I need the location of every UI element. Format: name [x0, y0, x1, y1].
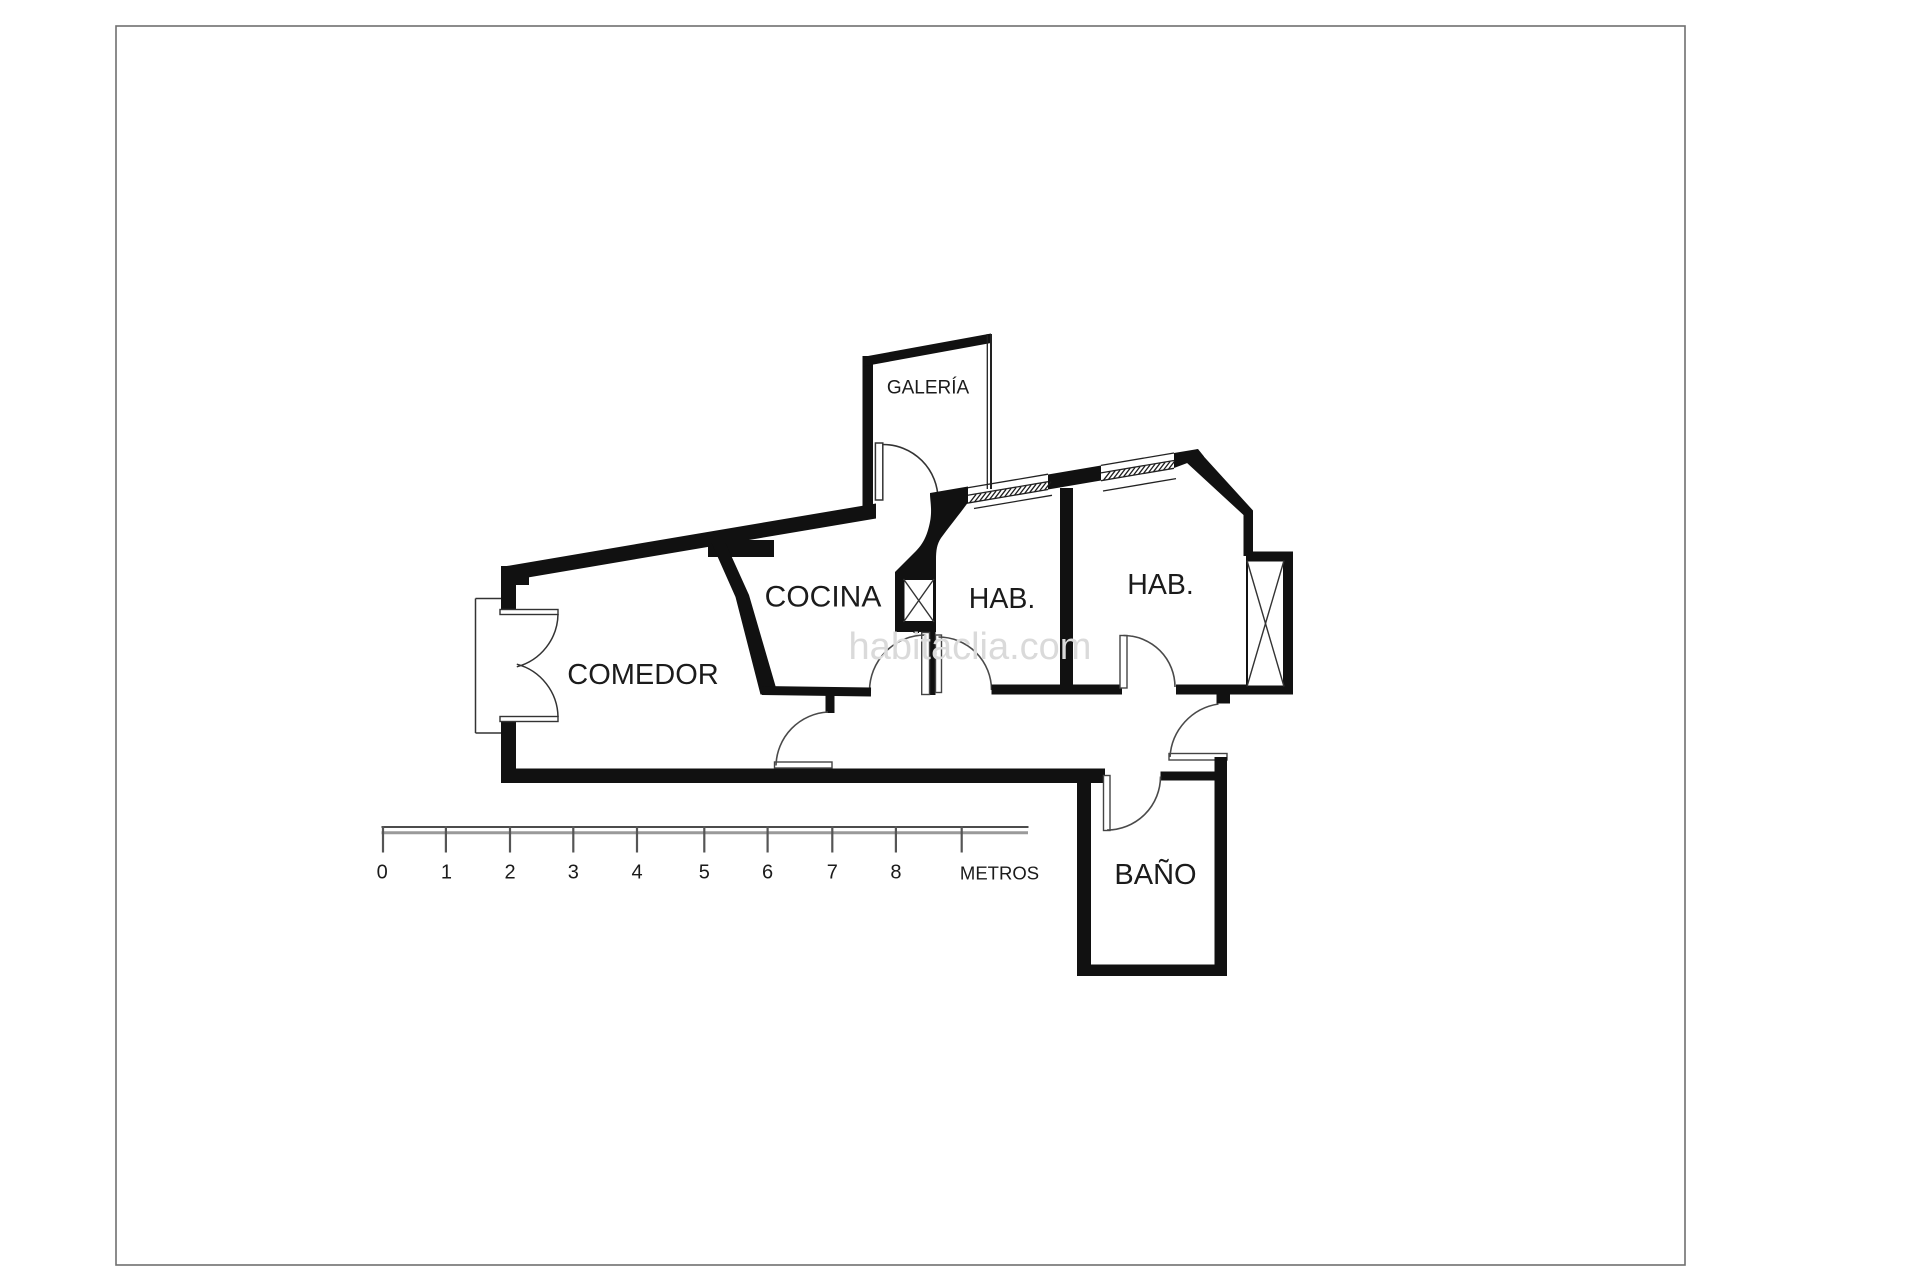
svg-text:3: 3: [568, 862, 579, 884]
svg-text:0: 0: [377, 862, 388, 884]
svg-text:COMEDOR: COMEDOR: [567, 659, 718, 691]
svg-text:BAÑO: BAÑO: [1114, 857, 1196, 891]
svg-text:6: 6: [762, 862, 773, 884]
svg-text:habitaclia.com: habitaclia.com: [849, 626, 1092, 668]
svg-text:8: 8: [890, 862, 901, 884]
svg-text:5: 5: [699, 862, 710, 884]
svg-text:4: 4: [631, 862, 642, 884]
svg-text:GALERÍA: GALERÍA: [887, 378, 970, 399]
svg-text:METROS: METROS: [960, 863, 1039, 884]
svg-text:7: 7: [827, 862, 838, 884]
svg-text:HAB.: HAB.: [1127, 569, 1194, 601]
svg-text:2: 2: [504, 862, 515, 884]
svg-text:HAB.: HAB.: [969, 583, 1036, 615]
svg-text:COCINA: COCINA: [765, 581, 882, 614]
svg-text:1: 1: [441, 862, 452, 884]
